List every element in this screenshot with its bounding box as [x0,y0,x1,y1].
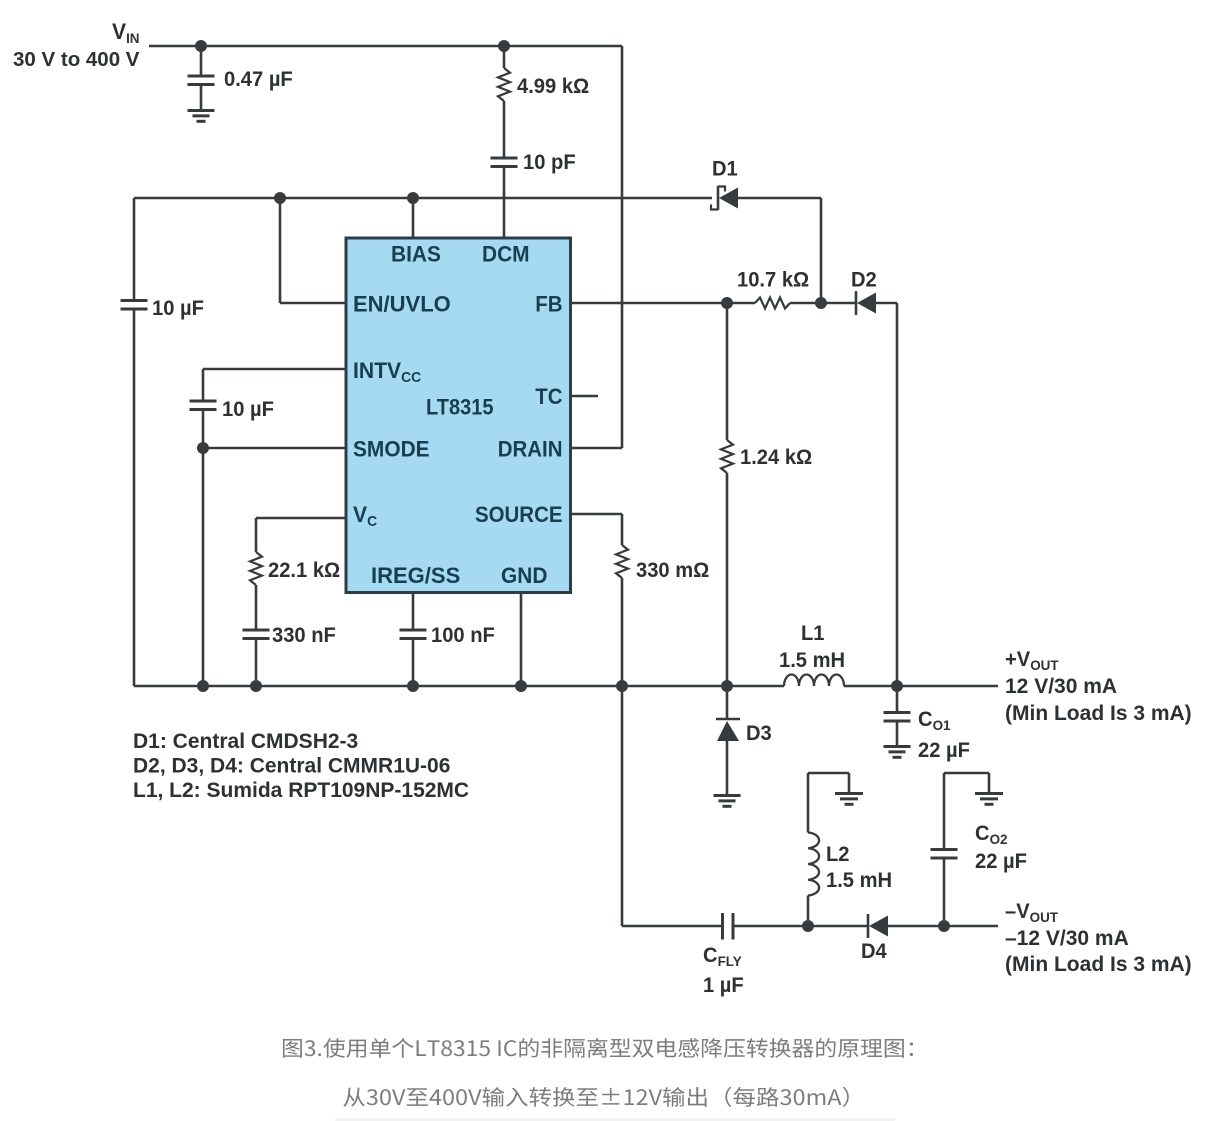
svg-text:D3: D3 [746,722,772,745]
svg-text:100 nF: 100 nF [431,624,495,647]
svg-text:1 µF: 1 µF [703,974,744,997]
svg-text:CFLY: CFLY [703,944,742,969]
svg-text:0.47 µF: 0.47 µF [224,68,293,91]
svg-text:–VOUT: –VOUT [1005,900,1059,925]
svg-text:4.99 kΩ: 4.99 kΩ [517,75,589,98]
svg-text:(Min Load Is 3 mA): (Min Load Is 3 mA) [1005,702,1192,725]
svg-text:DRAIN: DRAIN [498,437,563,462]
svg-text:10 pF: 10 pF [523,151,576,174]
svg-text:L1, L2: Sumida RPT109NP-152MC: L1, L2: Sumida RPT109NP-152MC [133,779,469,802]
svg-text:D4: D4 [861,940,887,963]
svg-text:CO2: CO2 [975,822,1008,847]
svg-text:LT8315: LT8315 [426,396,494,420]
svg-text:1.24 kΩ: 1.24 kΩ [740,446,812,469]
svg-text:GND: GND [501,564,547,589]
svg-text:VIN: VIN [112,19,140,46]
svg-text:22.1 kΩ: 22.1 kΩ [268,559,340,582]
svg-text:IREG/SS: IREG/SS [371,563,460,588]
svg-text:22 µF: 22 µF [975,850,1027,873]
svg-text:D2, D3, D4: Central CMMR1U-06: D2, D3, D4: Central CMMR1U-06 [133,755,450,778]
svg-text:1.5 mH: 1.5 mH [779,649,845,672]
svg-text:BIAS: BIAS [391,242,441,267]
svg-text:–12 V/30 mA: –12 V/30 mA [1005,927,1129,950]
svg-text:SOURCE: SOURCE [475,502,563,527]
svg-text:22 µF: 22 µF [918,739,970,762]
svg-text:330 mΩ: 330 mΩ [636,559,709,582]
svg-text:+VOUT: +VOUT [1005,648,1059,673]
svg-text:D1: D1 [712,157,738,180]
svg-text:CO1: CO1 [918,708,951,733]
svg-text:12 V/30 mA: 12 V/30 mA [1005,675,1117,698]
svg-text:330 nF: 330 nF [272,624,336,647]
svg-text:FB: FB [535,292,562,317]
svg-text:D1: Central CMDSH2-3: D1: Central CMDSH2-3 [133,730,358,753]
svg-text:30 V to 400 V: 30 V to 400 V [13,48,140,71]
svg-text:10 µF: 10 µF [152,297,204,320]
svg-text:10.7 kΩ: 10.7 kΩ [737,268,809,291]
svg-text:1.5 mH: 1.5 mH [826,869,892,892]
svg-text:(Min Load Is 3 mA): (Min Load Is 3 mA) [1005,953,1192,976]
svg-text:L2: L2 [826,843,850,866]
svg-text:SMODE: SMODE [353,437,430,462]
svg-text:TC: TC [535,384,562,409]
svg-text:10 µF: 10 µF [222,398,274,421]
svg-text:L1: L1 [801,622,825,645]
svg-text:EN/UVLO: EN/UVLO [353,292,451,317]
svg-text:DCM: DCM [482,242,530,267]
svg-text:D2: D2 [851,268,877,291]
